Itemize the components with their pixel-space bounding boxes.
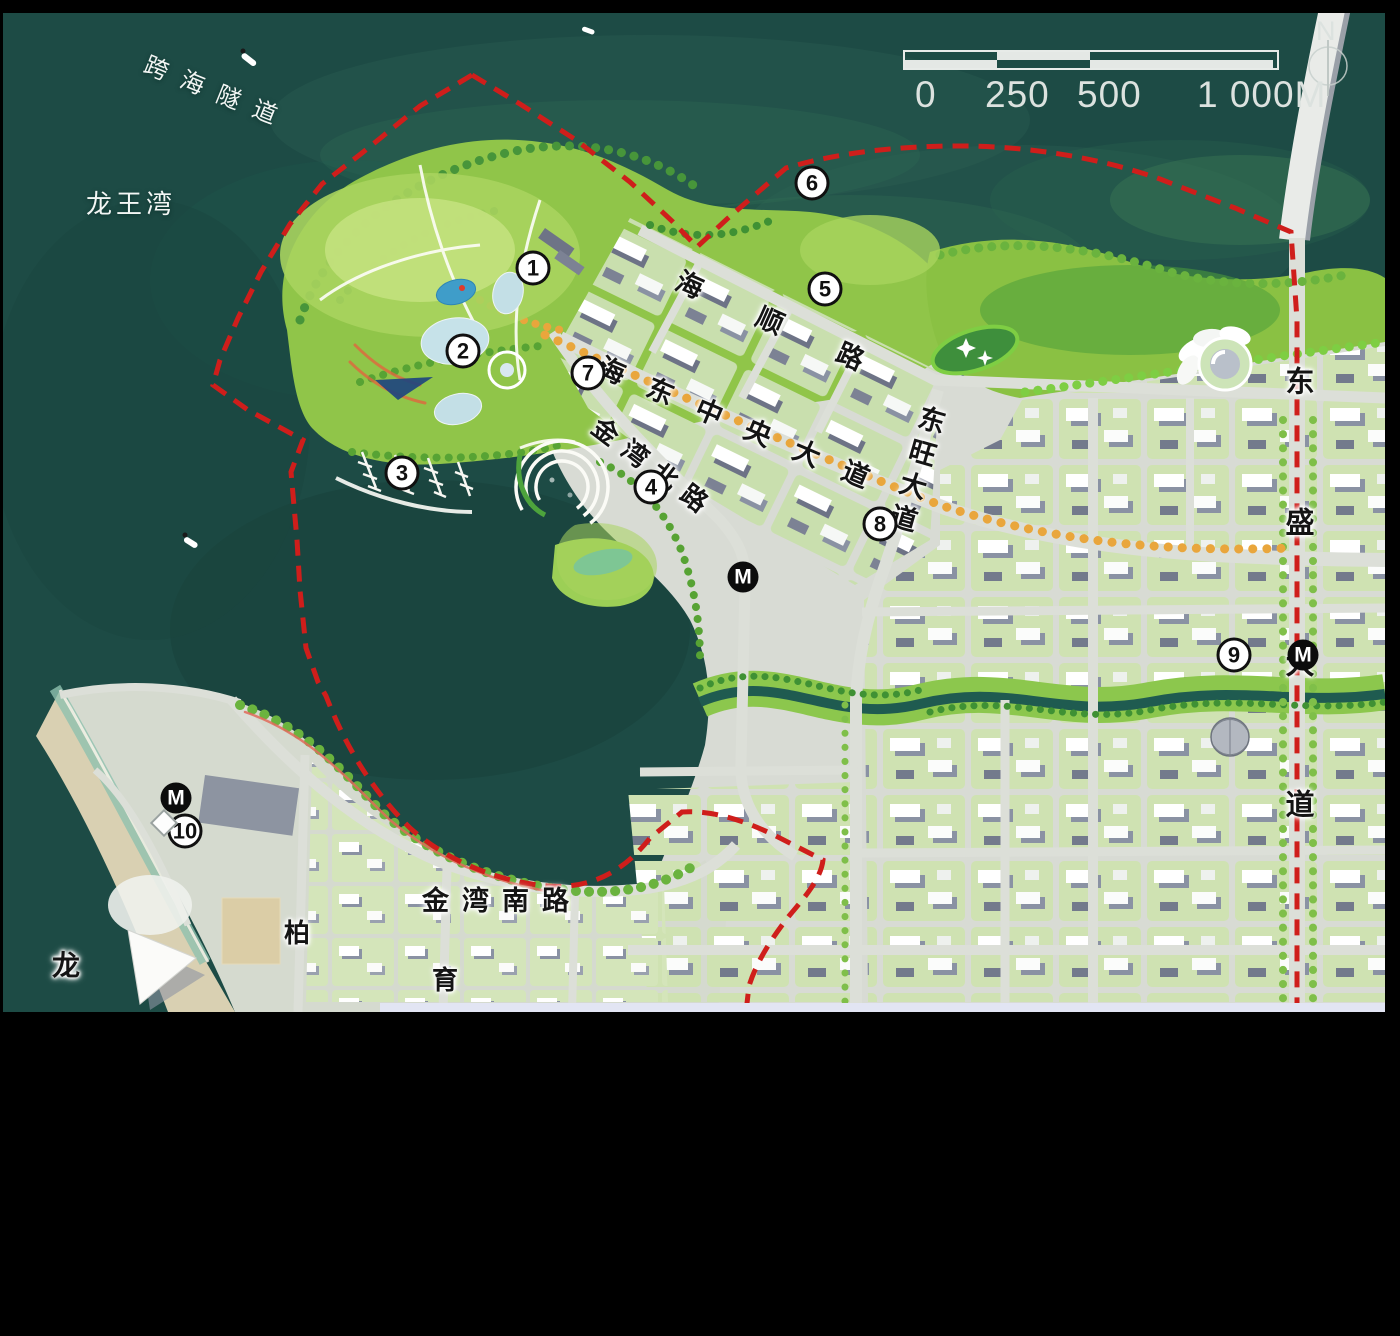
scale-segment xyxy=(1090,52,1273,60)
screenshot-root: { "map": { "water_labels": { "tunnel": "… xyxy=(0,0,1400,1336)
scale-tick-250: 250 xyxy=(985,74,1050,116)
metro-station-icon: M xyxy=(728,562,759,593)
plan-marker-4: 4 xyxy=(634,470,669,505)
scale-tick-1000: 1 000M xyxy=(1197,74,1326,116)
scale-tick-500: 500 xyxy=(1077,74,1142,116)
plan-marker-7: 7 xyxy=(571,356,606,391)
scale-segment xyxy=(997,60,1090,68)
scale-segment xyxy=(905,60,997,68)
plan-marker-9: 9 xyxy=(1217,638,1252,673)
scale-segment xyxy=(997,52,1090,60)
north-label: N xyxy=(1316,16,1336,47)
masterplan-image xyxy=(3,13,1385,1012)
plan-marker-8: 8 xyxy=(863,507,898,542)
metro-station-icon: M xyxy=(161,783,192,814)
masterplan-scene xyxy=(3,13,1385,1012)
metro-station-icon: M xyxy=(1288,640,1319,671)
scale-tick-0: 0 xyxy=(915,74,937,116)
plan-marker-2: 2 xyxy=(446,334,481,369)
image-bottom-edge xyxy=(380,1003,1385,1012)
plan-marker-3: 3 xyxy=(385,456,420,491)
plan-marker-6: 6 xyxy=(795,166,830,201)
plan-marker-5: 5 xyxy=(808,272,843,307)
scale-segment xyxy=(1090,60,1273,68)
scale-bar xyxy=(903,50,1279,70)
scale-segment xyxy=(905,52,997,60)
plan-marker-1: 1 xyxy=(516,251,551,286)
